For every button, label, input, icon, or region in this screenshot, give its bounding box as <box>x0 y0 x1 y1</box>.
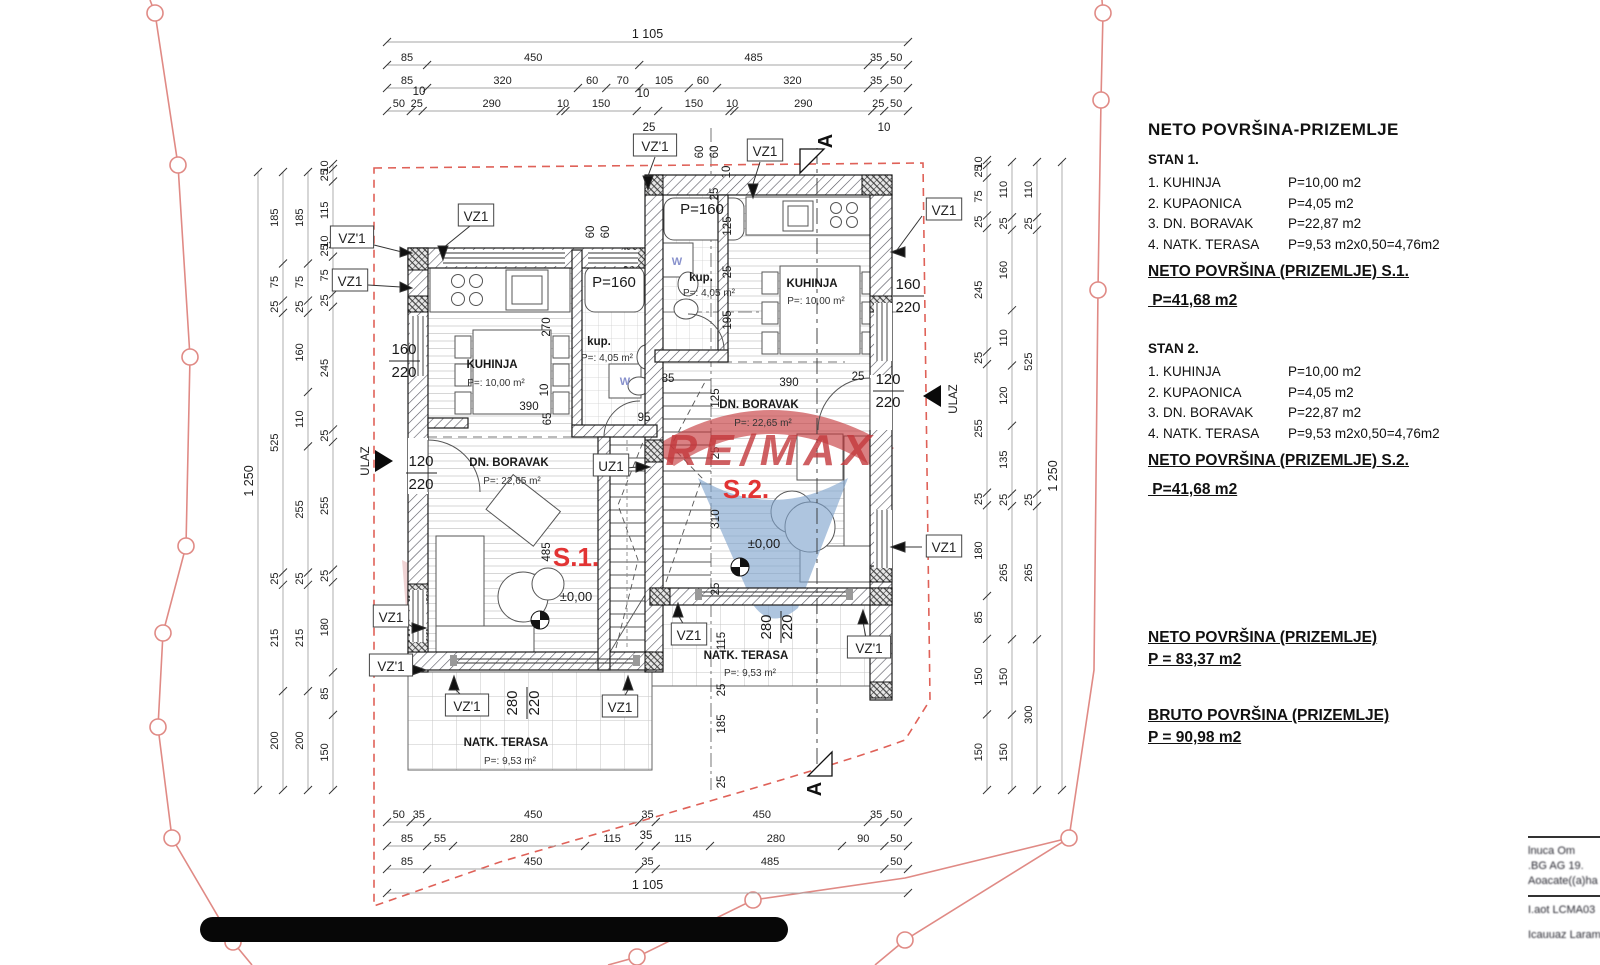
dim-label: 25 <box>722 266 734 279</box>
box-label: VZ1 <box>464 209 489 224</box>
red-label: S.2. <box>723 474 769 504</box>
small-label: P=: 22,65 m² <box>483 476 541 487</box>
svg-text:50: 50 <box>890 75 902 87</box>
dim-label: ULAZ <box>360 446 372 475</box>
svg-text:75: 75 <box>319 269 331 281</box>
svg-text:35: 35 <box>870 75 882 87</box>
dim-label: 65 <box>542 413 554 426</box>
dim-label: 25 <box>710 583 722 596</box>
frac-label: 120 <box>875 371 900 388</box>
svg-text:10: 10 <box>557 98 569 110</box>
neto-total-value: P = 83,37 m2 <box>1148 649 1508 671</box>
svg-text:150: 150 <box>973 743 985 761</box>
svg-text:265: 265 <box>998 564 1010 582</box>
svg-text:215: 215 <box>294 629 306 647</box>
svg-text:265: 265 <box>1023 564 1035 582</box>
svg-text:185: 185 <box>269 209 281 227</box>
dim-label: 95 <box>638 412 651 424</box>
dim-label: 85 <box>662 373 675 385</box>
svg-text:25: 25 <box>973 352 985 364</box>
dim-label: 270 <box>541 317 553 336</box>
svg-text:50: 50 <box>890 52 902 64</box>
dim-label: 10 <box>637 88 650 100</box>
svg-text:25: 25 <box>973 216 985 228</box>
red-label: S.1. <box>553 542 599 572</box>
stan2-sum-value: P=41,68 m2 <box>1148 477 1508 502</box>
schedule-row: 4. NATK. TERASAP=9,53 m2x0,50=4,76m2 <box>1148 424 1508 445</box>
svg-text:245: 245 <box>319 359 331 377</box>
svg-text:25: 25 <box>319 244 331 256</box>
svg-text:35: 35 <box>641 856 653 868</box>
schedule-row: 1. KUHINJAP=10,00 m2 <box>1148 173 1508 194</box>
svg-text:485: 485 <box>744 52 762 64</box>
box-label: VZ1 <box>932 203 957 218</box>
section-flag-top <box>800 149 824 173</box>
box-label: VZ'1 <box>453 699 480 714</box>
room-label: NATK. TERASA <box>464 737 549 749</box>
dim-label: 390 <box>779 377 798 389</box>
svg-text:290: 290 <box>482 98 500 110</box>
frac-label: 120 <box>408 453 433 470</box>
svg-text:160: 160 <box>294 343 306 361</box>
svg-text:35: 35 <box>870 809 882 821</box>
section-flag-bottom <box>808 752 832 776</box>
floor-plan-sheet: { "panel": { "heading": "NETO POVRŠINA-P… <box>0 0 1600 965</box>
svg-text:450: 450 <box>753 809 771 821</box>
room-label: DN. BORAVAK <box>469 457 549 469</box>
stan2-title: STAN 2. <box>1148 341 1508 356</box>
box-label: VZ1 <box>338 274 363 289</box>
svg-text:35: 35 <box>641 809 653 821</box>
bruto-total-label: BRUTO POVRŠINA (PRIZEMLJE) <box>1148 705 1508 727</box>
dim-label: 125 <box>710 388 722 407</box>
title-block-line: Aoacate((a)ha <box>1528 874 1600 889</box>
room-label: DN. BORAVAK <box>719 399 799 411</box>
svg-text:35: 35 <box>413 809 425 821</box>
svg-text:50: 50 <box>890 833 902 845</box>
schedule-row: 4. NATK. TERASAP=9,53 m2x0,50=4,76m2 <box>1148 235 1508 256</box>
svg-text:85: 85 <box>401 856 413 868</box>
dim-label: 25 <box>716 776 728 789</box>
box-label: VZ1 <box>932 540 957 555</box>
svg-text:105: 105 <box>655 75 673 87</box>
box-label: VZ'1 <box>641 139 668 154</box>
panel-heading: NETO POVRŠINA-PRIZEMLJE <box>1148 120 1508 140</box>
svg-text:25: 25 <box>319 430 331 442</box>
svg-text:115: 115 <box>674 833 692 845</box>
small-label: P=: 10,00 m² <box>467 378 525 389</box>
axis-label: A <box>804 782 826 796</box>
dim-label: 195 <box>722 310 734 329</box>
frac-label: P=160 <box>680 201 724 218</box>
svg-text:485: 485 <box>761 856 779 868</box>
svg-text:25: 25 <box>269 301 281 313</box>
svg-text:180: 180 <box>973 541 985 559</box>
svg-text:75: 75 <box>294 276 306 288</box>
svg-text:150: 150 <box>973 667 985 685</box>
svg-text:25: 25 <box>294 301 306 313</box>
svg-text:255: 255 <box>973 419 985 437</box>
svg-text:85: 85 <box>401 52 413 64</box>
svg-text:1 250: 1 250 <box>242 465 256 496</box>
svg-text:110: 110 <box>294 410 306 428</box>
neto-total-label: NETO POVRŠINA (PRIZEMLJE) <box>1148 627 1508 649</box>
svg-text:25: 25 <box>1023 217 1035 229</box>
svg-text:25: 25 <box>319 570 331 582</box>
small-label: P=: 10,00 m² <box>787 296 845 307</box>
dim-label: 485 <box>541 542 553 561</box>
area-schedule-panel: NETO POVRŠINA-PRIZEMLJE STAN 1. 1. KUHIN… <box>1148 120 1508 502</box>
dim-label: ULAZ <box>948 384 960 413</box>
svg-text:150: 150 <box>998 743 1010 761</box>
svg-text:75: 75 <box>269 276 281 288</box>
totals-block: NETO POVRŠINA (PRIZEMLJE) P = 83,37 m2 B… <box>1148 627 1508 749</box>
svg-text:25: 25 <box>973 493 985 505</box>
frac-label: 160 <box>895 276 920 293</box>
dim-label: 25 <box>716 684 728 697</box>
svg-text:70: 70 <box>617 75 629 87</box>
svg-text:1 105: 1 105 <box>632 878 663 892</box>
svg-text:280: 280 <box>767 833 785 845</box>
schedule-row: 1. KUHINJAP=10,00 m2 <box>1148 362 1508 383</box>
stan2-block: STAN 2. 1. KUHINJAP=10,00 m2 2. KUPAONIC… <box>1148 341 1508 502</box>
box-label: VZ'1 <box>855 641 882 656</box>
svg-text:25: 25 <box>411 98 423 110</box>
schedule-row: 3. DN. BORAVAKP=22,87 m2 <box>1148 403 1508 424</box>
stan1-title: STAN 1. <box>1148 152 1508 167</box>
svg-text:60: 60 <box>697 75 709 87</box>
title-block-line: I.aot LCMA03 <box>1528 903 1600 918</box>
level-label: ±0,00 <box>748 536 780 551</box>
svg-text:180: 180 <box>319 618 331 636</box>
svg-text:255: 255 <box>294 500 306 518</box>
svg-text:50: 50 <box>890 856 902 868</box>
svg-text:525: 525 <box>1023 353 1035 371</box>
svg-text:50: 50 <box>890 98 902 110</box>
frac-label: 220 <box>526 690 543 715</box>
dim-label: 10 <box>721 166 733 179</box>
small-label: P=: 9,53 m² <box>724 668 777 679</box>
dim-label: 60 <box>694 146 706 159</box>
frac-label: 220 <box>391 364 416 381</box>
svg-text:35: 35 <box>870 52 882 64</box>
dim-label: 310 <box>710 509 722 528</box>
svg-text:25: 25 <box>973 165 985 177</box>
dim-label: 60 <box>585 226 597 239</box>
frac-label: 160 <box>391 341 416 358</box>
svg-text:450: 450 <box>524 52 542 64</box>
dim-label: 185 <box>716 714 728 733</box>
svg-text:25: 25 <box>998 217 1010 229</box>
dim-label: 125 <box>722 216 734 235</box>
dim-label: 25 <box>709 188 721 201</box>
schedule-row: 3. DN. BORAVAKP=22,87 m2 <box>1148 214 1508 235</box>
dim-label: 10 <box>878 122 891 134</box>
dim-label: 10 <box>413 86 426 98</box>
svg-text:215: 215 <box>269 629 281 647</box>
svg-text:25: 25 <box>319 169 331 181</box>
svg-text:200: 200 <box>269 731 281 749</box>
svg-text:25: 25 <box>269 573 281 585</box>
dim-label: 60 <box>600 226 612 239</box>
dim-label: 390 <box>519 401 538 413</box>
svg-text:150: 150 <box>592 98 610 110</box>
title-block: lnuca Om .BG AG 19. Aoacate((a)ha I.aot … <box>1528 836 1600 943</box>
stan2-sum-label: NETO POVRŠINA (PRIZEMLJE) S.2. <box>1148 448 1508 473</box>
svg-text:1 250: 1 250 <box>1046 460 1060 491</box>
svg-text:90: 90 <box>857 833 869 845</box>
svg-text:525: 525 <box>269 434 281 452</box>
box-label: VZ1 <box>379 610 404 625</box>
box-label: UZ1 <box>598 459 624 474</box>
frac-label: 280 <box>504 690 521 715</box>
svg-text:115: 115 <box>603 833 621 845</box>
dim-label: 35 <box>640 830 653 842</box>
svg-text:85: 85 <box>401 833 413 845</box>
dim-label: 10 <box>539 384 551 397</box>
frac-label: 220 <box>408 476 433 493</box>
schedule-row: 2. KUPAONICAP=4,05 m2 <box>1148 194 1508 215</box>
box-label: VZ'1 <box>377 659 404 674</box>
svg-text:85: 85 <box>973 611 985 623</box>
frac-label: 280 <box>758 614 775 639</box>
frac-label: 220 <box>779 614 796 639</box>
title-block-rule <box>1528 895 1600 897</box>
svg-text:300: 300 <box>1023 705 1035 723</box>
svg-text:85: 85 <box>319 687 331 699</box>
svg-text:255: 255 <box>319 497 331 515</box>
room-label: KUHINJA <box>786 278 837 290</box>
box-label: VZ1 <box>753 144 778 159</box>
bruto-total-value: P = 90,98 m2 <box>1148 727 1508 749</box>
title-block-line: .BG AG 19. <box>1528 859 1600 874</box>
svg-text:50: 50 <box>393 98 405 110</box>
svg-text:25: 25 <box>294 573 306 585</box>
schedule-row: 2. KUPAONICAP=4,05 m2 <box>1148 383 1508 404</box>
svg-text:290: 290 <box>794 98 812 110</box>
svg-text:150: 150 <box>685 98 703 110</box>
svg-text:60: 60 <box>586 75 598 87</box>
svg-text:135: 135 <box>998 450 1010 468</box>
svg-text:25: 25 <box>1023 494 1035 506</box>
svg-text:1 105: 1 105 <box>632 27 663 41</box>
box-label: VZ'1 <box>338 231 365 246</box>
axis-label: A <box>815 134 837 148</box>
room-label: KUHINJA <box>466 359 517 371</box>
svg-text:150: 150 <box>319 743 331 761</box>
stan1-sum-value: P=41,68 m2 <box>1148 288 1508 313</box>
svg-text:85: 85 <box>401 75 413 87</box>
svg-text:245: 245 <box>973 281 985 299</box>
svg-text:25: 25 <box>872 98 884 110</box>
level-label: ±0,00 <box>560 589 592 604</box>
svg-text:320: 320 <box>783 75 801 87</box>
svg-text:50: 50 <box>393 809 405 821</box>
svg-text:150: 150 <box>998 668 1010 686</box>
room-label: kup. <box>587 336 611 348</box>
sink <box>674 299 698 319</box>
svg-text:320: 320 <box>493 75 511 87</box>
svg-text:55: 55 <box>434 833 446 845</box>
frac-label: 220 <box>895 299 920 316</box>
svg-text:450: 450 <box>524 856 542 868</box>
svg-text:75: 75 <box>973 190 985 202</box>
dining-table <box>473 330 551 414</box>
box-label: VZ1 <box>677 628 702 643</box>
scale-bar <box>200 917 788 942</box>
stan1-block: STAN 1. 1. KUHINJAP=10,00 m2 2. KUPAONIC… <box>1148 152 1508 313</box>
frac-label: 220 <box>875 394 900 411</box>
dim-label: 60 <box>709 146 721 159</box>
svg-text:25: 25 <box>319 294 331 306</box>
dim-label: 25 <box>643 122 656 134</box>
wash-label: W <box>672 256 683 268</box>
svg-text:50: 50 <box>890 809 902 821</box>
dim-label: 115 <box>716 632 728 650</box>
title-block-rule <box>1528 836 1600 838</box>
frac-label: P=160 <box>592 274 636 291</box>
wash-label: W <box>620 376 631 388</box>
kitchen-counter <box>430 268 570 312</box>
svg-text:450: 450 <box>524 809 542 821</box>
svg-text:160: 160 <box>998 261 1010 279</box>
svg-text:110: 110 <box>998 181 1010 199</box>
svg-text:185: 185 <box>294 209 306 227</box>
dim-label: 25 <box>852 371 865 383</box>
wm-label: RE/MAX <box>665 426 878 475</box>
svg-text:115: 115 <box>319 202 331 220</box>
svg-text:110: 110 <box>998 329 1010 347</box>
svg-text:280: 280 <box>510 833 528 845</box>
svg-text:200: 200 <box>294 731 306 749</box>
room-label: kup. <box>689 272 713 284</box>
title-block-line: lnuca Om <box>1528 844 1600 859</box>
svg-text:10: 10 <box>726 98 738 110</box>
svg-text:25: 25 <box>998 494 1010 506</box>
svg-text:110: 110 <box>1023 181 1035 199</box>
svg-text:120: 120 <box>998 386 1010 404</box>
stan1-sum-label: NETO POVRŠINA (PRIZEMLJE) S.1. <box>1148 259 1508 284</box>
small-label: P=: 4,05 m² <box>581 353 634 364</box>
small-label: P=: 4,05 m² <box>683 288 736 299</box>
title-block-line: Icauuaz Laram <box>1528 928 1600 943</box>
ulaz-arrow-left <box>375 450 393 472</box>
box-label: VZ1 <box>608 700 633 715</box>
room-label: NATK. TERASA <box>704 650 789 662</box>
small-label: P=: 9,53 m² <box>484 756 537 767</box>
